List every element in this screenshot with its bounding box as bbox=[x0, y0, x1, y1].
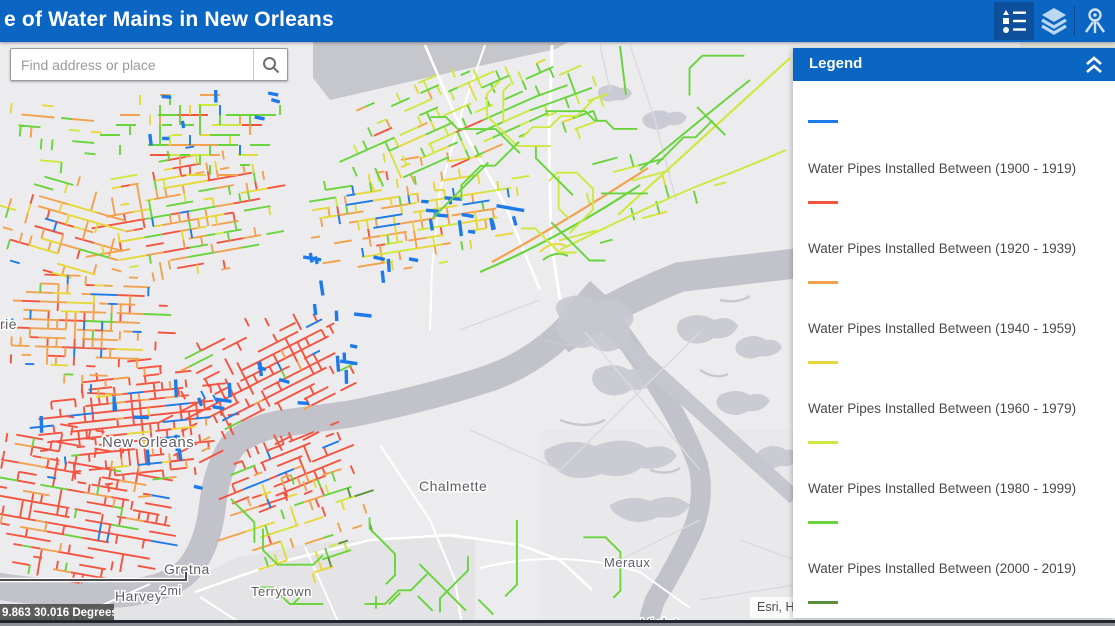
legend-tool-button[interactable] bbox=[994, 2, 1034, 40]
legend-item-swatch bbox=[808, 361, 838, 364]
map-place-label: Terrytown bbox=[251, 584, 312, 599]
attribute-pin-icon bbox=[1079, 6, 1111, 36]
legend-item-label: Water Pipes Installed Between (1900 - 19… bbox=[808, 160, 1100, 177]
header-toolbar bbox=[994, 0, 1115, 42]
legend-title: Legend bbox=[809, 55, 862, 72]
legend-item: Water Pipes Installed Between (2000 - 20… bbox=[808, 560, 1100, 577]
legend-item-swatch bbox=[808, 201, 838, 204]
collapse-panel-button[interactable] bbox=[1083, 54, 1105, 76]
double-chevron-up-icon bbox=[1083, 54, 1105, 76]
legend-item: Water Pipes Installed Between (1920 - 19… bbox=[808, 240, 1100, 257]
legend-item-swatch bbox=[808, 601, 838, 604]
legend-item-label: Water Pipes Installed Between (2000 - 20… bbox=[808, 560, 1100, 577]
legend-item-label: Water Pipes Installed Between (1940 - 19… bbox=[808, 320, 1100, 337]
legend-list-icon bbox=[999, 7, 1029, 35]
legend-panel: Legend Water Pipes Installed Between (19… bbox=[793, 48, 1115, 618]
attribute-tool-button[interactable] bbox=[1075, 2, 1115, 40]
legend-item-label: Water Pipes Installed Between (1960 - 19… bbox=[808, 400, 1100, 417]
legend-item-swatch bbox=[808, 281, 838, 284]
layers-tool-button[interactable] bbox=[1034, 2, 1074, 40]
legend-item-swatch bbox=[808, 441, 838, 444]
search-input[interactable] bbox=[11, 49, 253, 80]
legend-swatch-partial bbox=[808, 120, 838, 123]
legend-item: Water Pipes Installed Between (1940 - 19… bbox=[808, 320, 1100, 337]
legend-item: Water Pipes Installed Between (1900 - 19… bbox=[808, 160, 1100, 177]
search-button[interactable] bbox=[253, 49, 287, 80]
scale-label: 2mi bbox=[160, 584, 182, 598]
legend-item: Water Pipes Installed Between (1960 - 19… bbox=[808, 400, 1100, 417]
legend-item: Water Pipes Installed Between (1980 - 19… bbox=[808, 480, 1100, 497]
legend-item-swatch bbox=[808, 521, 838, 524]
legend-item-label: Water Pipes Installed Between (1920 - 19… bbox=[808, 240, 1100, 257]
legend-panel-header: Legend bbox=[793, 48, 1115, 81]
map-place-label: New Orleans bbox=[102, 434, 194, 451]
map-place-label: rie bbox=[0, 316, 17, 332]
app-title: e of Water Mains in New Orleans bbox=[4, 8, 334, 32]
map-place-label: Chalmette bbox=[419, 478, 487, 494]
app-header: e of Water Mains in New Orleans bbox=[0, 0, 1115, 42]
layers-icon bbox=[1038, 6, 1070, 36]
legend-item-label: Water Pipes Installed Between (1980 - 19… bbox=[808, 480, 1100, 497]
map-place-label: Meraux bbox=[604, 555, 650, 570]
map-place-label: Harvey bbox=[115, 588, 162, 604]
search-box bbox=[10, 48, 288, 81]
search-icon bbox=[261, 55, 281, 75]
legend-items: Water Pipes Installed Between (1900 - 19… bbox=[793, 81, 1115, 618]
